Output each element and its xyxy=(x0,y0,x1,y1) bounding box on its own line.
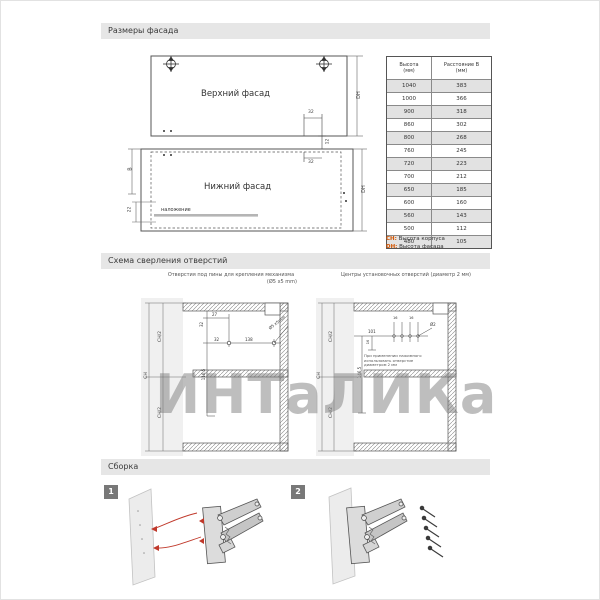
table-row: 600160 xyxy=(387,196,491,209)
table-row: 860302 xyxy=(387,118,491,131)
dim-16b: 16 xyxy=(409,316,413,320)
col1-unit: (мм) xyxy=(403,68,414,74)
dim-ch2-top: CH/2 xyxy=(158,331,163,342)
dim-16-vert: 16 xyxy=(366,340,370,344)
dim-ch-right: CH xyxy=(317,372,322,379)
facade-drawing: Верхний фасад Нижний фасад DH DH B 32 12… xyxy=(116,46,388,241)
right-drilling-drawing: CH CH/2 CH/2 101 16 16 Ø2 146,5 16 При п… xyxy=(316,298,466,456)
overlap-label: наложение xyxy=(161,207,191,213)
section-title-drilling: Схема сверления отверстий xyxy=(101,253,490,269)
instruction-page: Размеры фасада xyxy=(0,0,600,600)
section-title-facade: Размеры фасада xyxy=(101,23,490,39)
left-drill-caption: Отверстия под пины для крепления механиз… xyxy=(151,272,311,286)
facade-drawing-lines xyxy=(116,46,388,241)
table-row: 720223 xyxy=(387,157,491,170)
col2-unit: (мм) xyxy=(456,68,467,74)
dim-ch-left: CH xyxy=(144,372,149,379)
dim-138: 138 xyxy=(245,337,253,342)
right-drill-caption: Центры установочных отверстий (диаметр 2… xyxy=(321,272,491,279)
hole-diameter-callout: Ø2 xyxy=(430,322,436,327)
table-row: 650185 xyxy=(387,183,491,196)
table-row: 700212 xyxy=(387,170,491,183)
table-row: 1000366 xyxy=(387,92,491,105)
dim-dh-lower: DH xyxy=(361,185,367,193)
legend-dh-text: Высота фасада xyxy=(399,244,443,250)
table-row: 1040383 xyxy=(387,79,491,92)
lower-facade-label: Нижний фасад xyxy=(204,182,271,192)
dim-32-vert: 32 xyxy=(199,322,204,327)
table-row: 500112 xyxy=(387,222,491,235)
drilling-note: При применении нажимного использовать от… xyxy=(364,354,428,368)
assembly-step1-illustration xyxy=(101,481,281,589)
height-distance-table: Высота (мм) Расстояние B (мм) 1040383 10… xyxy=(386,56,492,249)
legend-dh-key: DH: xyxy=(386,244,397,250)
dim-dh-upper: DH xyxy=(356,91,362,99)
lift-mechanism-drawing xyxy=(199,499,263,564)
dim-22-overlap: 22 xyxy=(127,207,132,213)
left-drilling-drawing: CH CH/2 CH/2 27 32 116,5 32 138 Ø5 х5mm xyxy=(141,298,306,456)
dim-ch2-bottom: CH/2 xyxy=(329,407,334,418)
legend-dh: DH: Высота фасада xyxy=(386,244,444,250)
dim-27: 27 xyxy=(212,312,217,317)
table-row: 900318 xyxy=(387,105,491,118)
section-title-assembly: Сборка xyxy=(101,459,490,475)
dim-101: 101 xyxy=(368,329,376,334)
table-row: 560143 xyxy=(387,209,491,222)
dim-b: B xyxy=(128,167,134,170)
dim-32-lower: 32 xyxy=(308,160,314,165)
legend-ch-text: Высота корпуса xyxy=(399,236,445,242)
table-row: 800268 xyxy=(387,131,491,144)
dim-146: 146,5 xyxy=(357,367,362,378)
dim-12-gap: 12 xyxy=(325,139,330,145)
lift-mechanism-drawing xyxy=(347,499,407,564)
dim-ch2-bottom: CH/2 xyxy=(158,407,163,418)
dim-16a: 16 xyxy=(393,316,397,320)
dim-116: 116,5 xyxy=(201,369,206,380)
legend-ch: CH: Высота корпуса xyxy=(386,236,445,242)
assembly-step2-illustration xyxy=(291,481,471,589)
dim-32-horiz: 32 xyxy=(214,337,219,342)
insert-arrow-icon xyxy=(151,513,201,551)
legend-ch-key: CH: xyxy=(386,236,397,242)
table-header-row: Высота (мм) Расстояние B (мм) xyxy=(387,57,491,79)
table-row: 760245 xyxy=(387,144,491,157)
dim-32-upper: 32 xyxy=(308,110,314,115)
screws-icon xyxy=(420,506,443,557)
upper-facade-label: Верхний фасад xyxy=(201,89,270,99)
dim-ch2-top: CH/2 xyxy=(329,331,334,342)
